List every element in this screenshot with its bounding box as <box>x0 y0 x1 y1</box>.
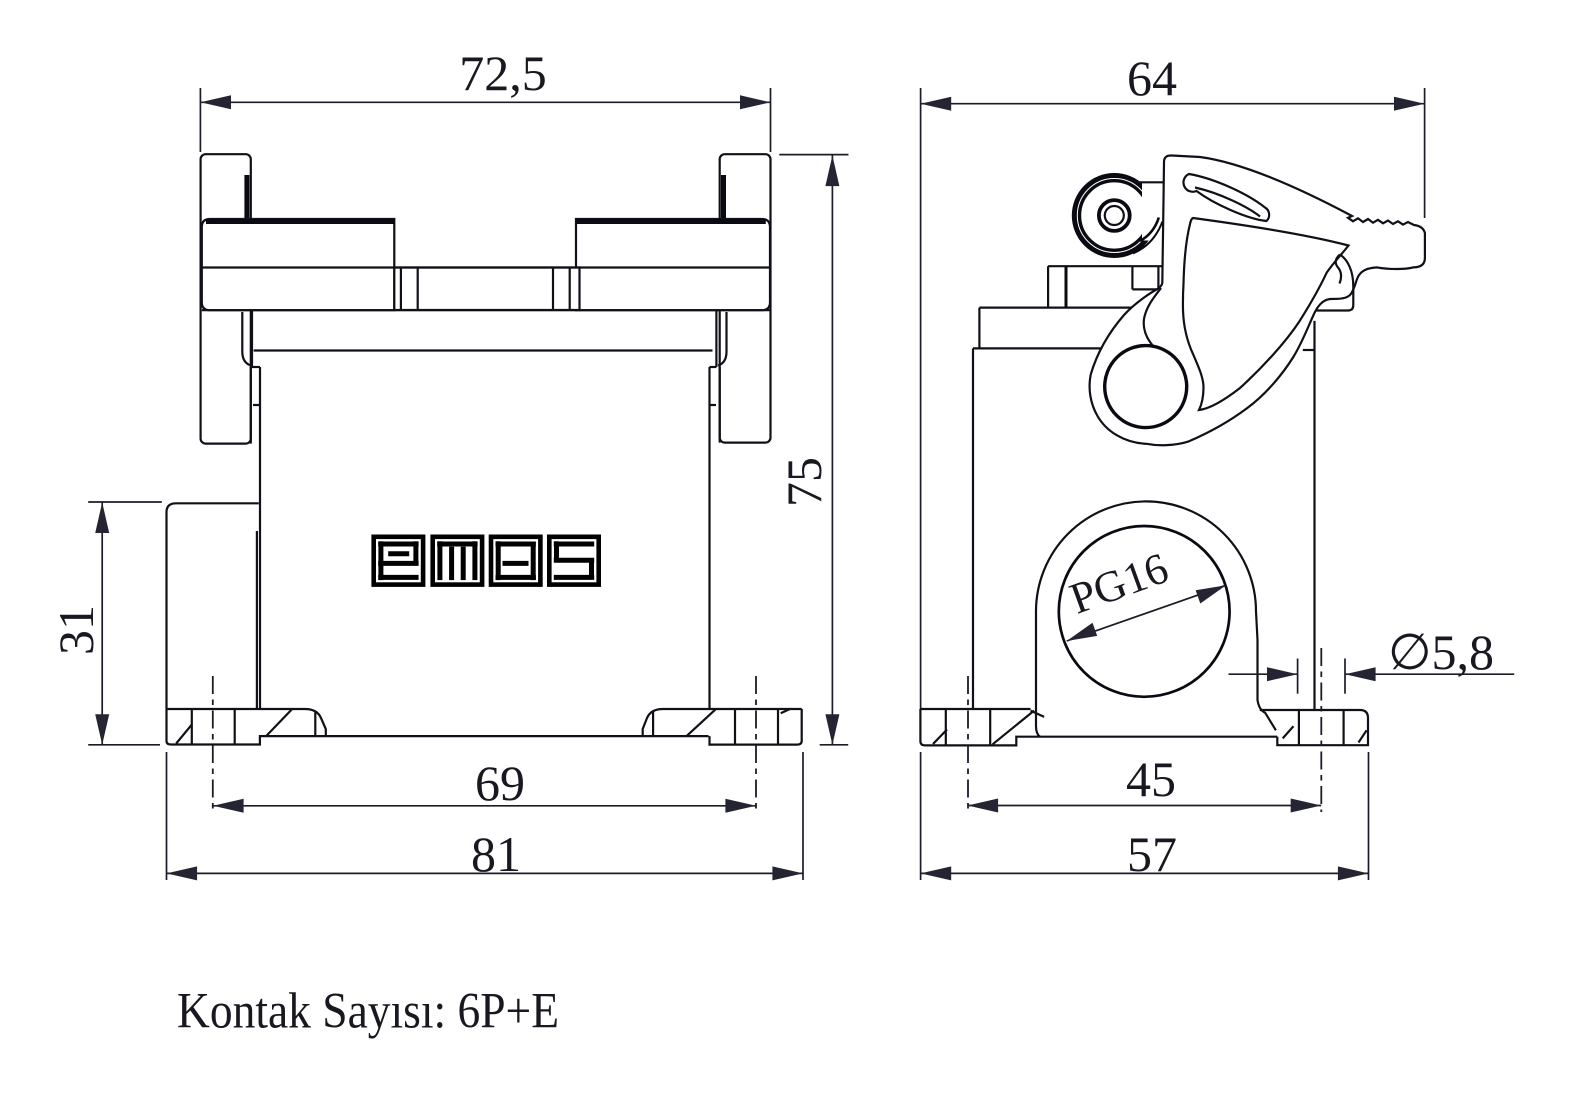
svg-text:64: 64 <box>1127 50 1177 106</box>
svg-text:∅5,8: ∅5,8 <box>1388 624 1494 680</box>
svg-text:69: 69 <box>475 755 525 811</box>
svg-text:75: 75 <box>776 457 832 507</box>
svg-text:57: 57 <box>1127 826 1177 882</box>
svg-text:81: 81 <box>471 826 521 882</box>
svg-text:Kontak Sayısı: 6P+E: Kontak Sayısı: 6P+E <box>177 984 559 1040</box>
svg-text:72,5: 72,5 <box>459 45 547 101</box>
svg-text:31: 31 <box>48 605 104 655</box>
svg-text:45: 45 <box>1126 751 1176 807</box>
